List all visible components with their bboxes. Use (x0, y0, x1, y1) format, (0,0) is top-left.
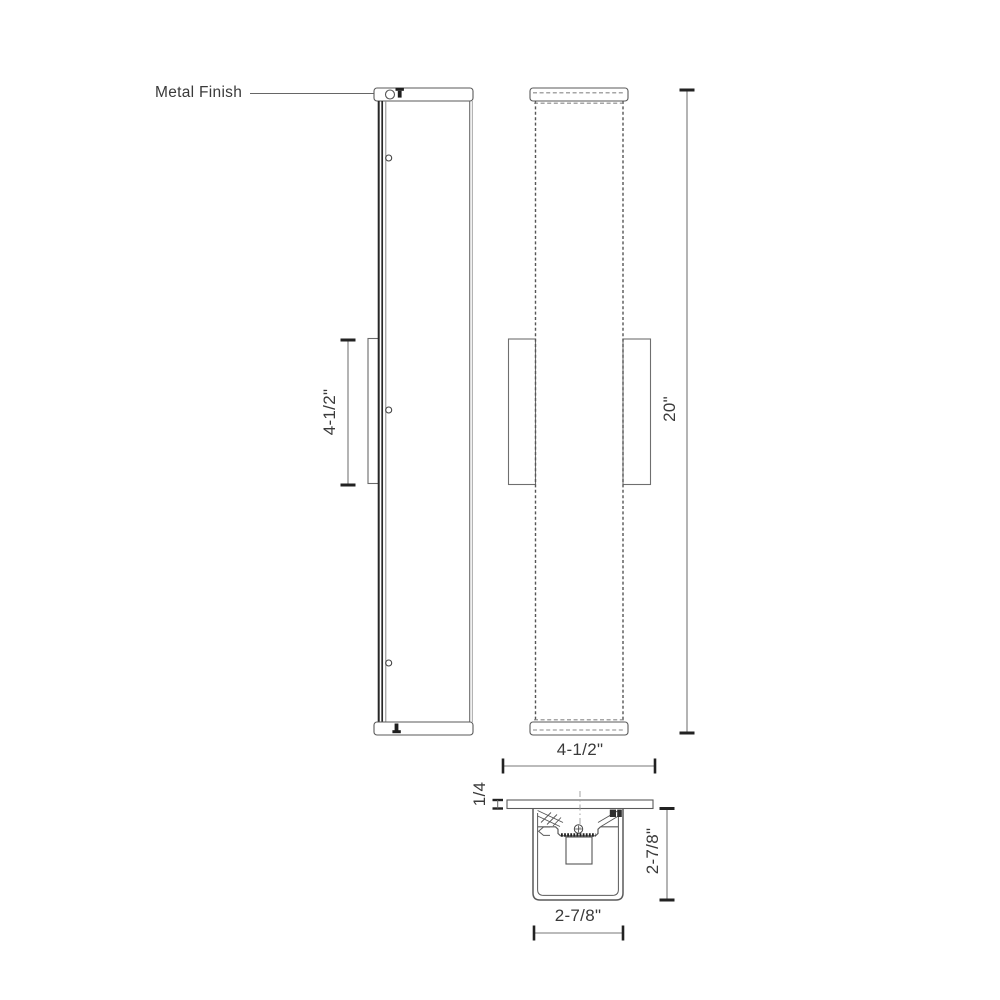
dim-label-backplate-height: 4-1/2" (320, 389, 340, 436)
side-view (250, 88, 473, 735)
dim-label-section-depth: 2-7/8" (643, 828, 663, 875)
dim-faceplate-thickness (493, 800, 504, 809)
dim-fixture-height (680, 90, 695, 733)
dim-label-fixture-height: 20" (660, 396, 680, 422)
drawing-linework (0, 0, 1000, 1000)
dim-label-faceplate-thickness: 1/4 (470, 782, 490, 807)
front-left-wing (509, 339, 536, 485)
dim-fixture-width (503, 759, 655, 774)
section-hook-notch (539, 827, 550, 835)
section-driver-box (566, 837, 592, 864)
front-top-cap (530, 88, 628, 101)
screw-hole-middle (386, 407, 392, 413)
dim-label-section-width: 2-7/8" (555, 906, 602, 926)
side-bottom-cap (374, 722, 473, 735)
screw-hole-top (386, 155, 392, 161)
section-fastener-blocks (610, 810, 622, 817)
screw-icon (574, 825, 582, 833)
dim-label-fixture-width: 4-1/2" (557, 740, 604, 760)
metal-finish-label: Metal Finish (155, 84, 242, 102)
section-left-cleat (538, 811, 563, 827)
dim-backplate-height (341, 340, 356, 485)
front-view (503, 88, 695, 774)
screw-hole-bottom (386, 660, 392, 666)
side-backplate (368, 339, 379, 484)
front-right-wing (623, 339, 651, 485)
front-bottom-cap (530, 722, 628, 735)
dimension-drawing-page: Metal Finish 4-1/2" 20" 4-1/2" 1/4 2-7/8… (0, 0, 1000, 1000)
dim-section-width (534, 926, 623, 941)
